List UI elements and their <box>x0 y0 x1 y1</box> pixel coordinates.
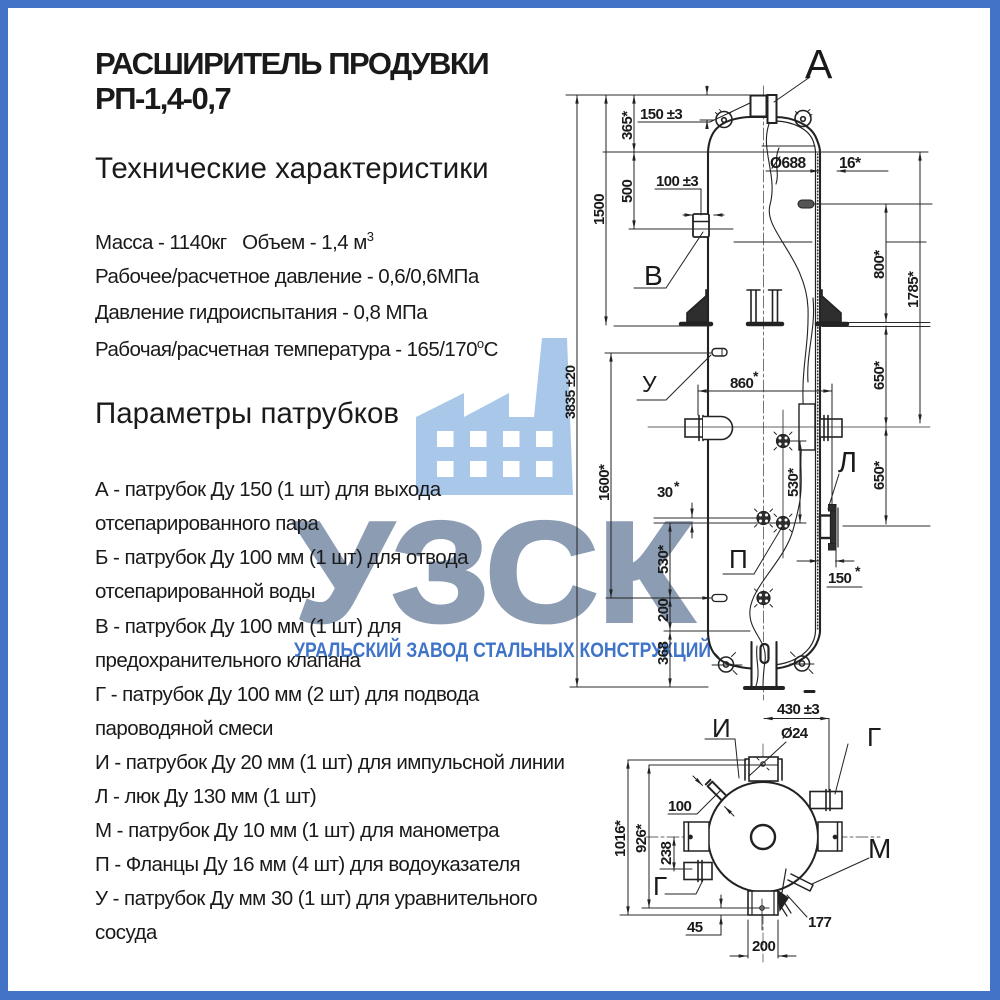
svg-text:16*: 16* <box>839 155 862 172</box>
svg-text:*: * <box>674 478 680 494</box>
svg-text:1500: 1500 <box>591 194 608 225</box>
svg-text:200: 200 <box>655 599 672 622</box>
svg-text:650*: 650* <box>871 461 888 490</box>
svg-text:177: 177 <box>808 914 831 931</box>
svg-text:В: В <box>644 260 663 291</box>
svg-text:45: 45 <box>687 919 703 936</box>
svg-text:*: * <box>855 563 861 579</box>
svg-text:200: 200 <box>752 938 775 955</box>
svg-text:530*: 530* <box>785 468 802 497</box>
svg-text:150 ±3: 150 ±3 <box>640 106 682 123</box>
svg-text:3835 ±20: 3835 ±20 <box>562 365 578 419</box>
svg-text:150: 150 <box>828 570 851 587</box>
svg-text:530*: 530* <box>655 545 672 574</box>
svg-text:Ø688: Ø688 <box>770 155 806 172</box>
svg-text:100: 100 <box>668 798 691 815</box>
svg-text:650*: 650* <box>871 361 888 390</box>
svg-text:П: П <box>729 544 748 574</box>
svg-text:1785*: 1785* <box>905 271 922 308</box>
svg-text:И: И <box>712 713 731 743</box>
svg-text:926*: 926* <box>633 824 650 853</box>
svg-text:*: * <box>753 368 759 384</box>
svg-text:Ø24: Ø24 <box>781 725 809 742</box>
svg-text:Г: Г <box>653 871 667 901</box>
svg-text:368: 368 <box>655 642 672 665</box>
svg-text:1016*: 1016* <box>612 820 629 857</box>
svg-text:М: М <box>868 833 891 864</box>
svg-text:860: 860 <box>730 375 753 392</box>
svg-text:430 ±3: 430 ±3 <box>777 701 819 718</box>
svg-text:А: А <box>805 41 833 87</box>
svg-text:500: 500 <box>619 180 636 203</box>
svg-text:800*: 800* <box>871 250 888 279</box>
svg-text:30: 30 <box>657 484 673 501</box>
svg-text:1600*: 1600* <box>596 464 613 501</box>
svg-text:100 ±3: 100 ±3 <box>656 173 698 190</box>
svg-text:238: 238 <box>658 842 675 865</box>
svg-text:365*: 365* <box>619 111 636 140</box>
svg-text:Г: Г <box>867 722 881 752</box>
svg-text:Л: Л <box>838 447 857 479</box>
svg-text:У: У <box>642 371 657 397</box>
